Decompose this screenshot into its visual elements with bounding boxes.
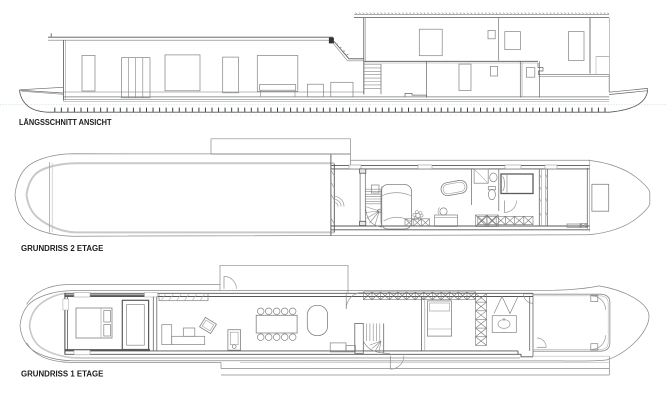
- svg-text:GRUNDRISS 2 ETAGE: GRUNDRISS 2 ETAGE: [21, 244, 104, 253]
- svg-text:LÄNGSSCHNITT ANSICHT: LÄNGSSCHNITT ANSICHT: [19, 117, 112, 127]
- svg-text:GRUNDRISS 1 ETAGE: GRUNDRISS 1 ETAGE: [21, 369, 104, 378]
